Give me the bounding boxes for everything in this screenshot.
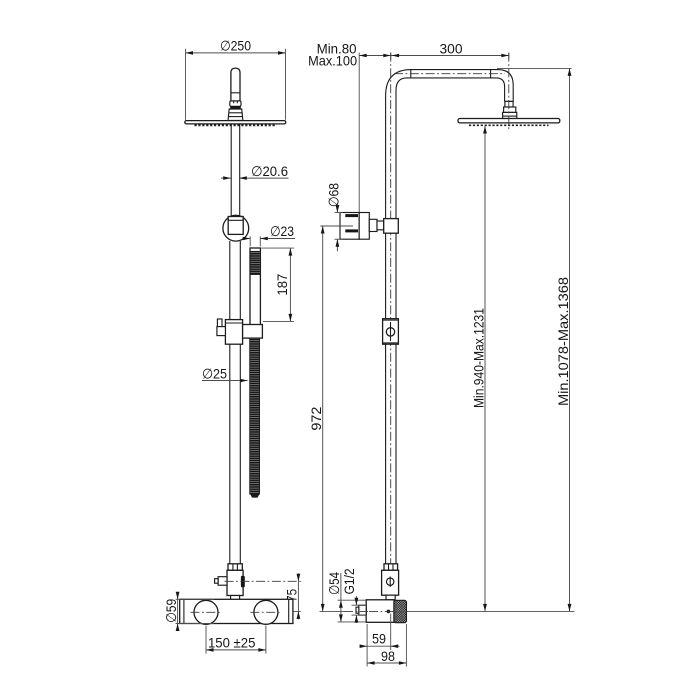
svg-text:Max.100: Max.100 xyxy=(308,54,357,69)
svg-text:∅25: ∅25 xyxy=(202,366,227,381)
svg-text:G1/2: G1/2 xyxy=(342,568,357,594)
svg-text:∅250: ∅250 xyxy=(220,38,251,53)
svg-text:∅59: ∅59 xyxy=(164,599,179,623)
svg-text:972: 972 xyxy=(309,407,324,431)
svg-text:∅54: ∅54 xyxy=(327,572,342,595)
svg-text:98: 98 xyxy=(381,649,395,664)
svg-text:∅68: ∅68 xyxy=(327,183,342,207)
svg-text:59: 59 xyxy=(372,632,386,647)
svg-text:187: 187 xyxy=(275,274,290,296)
svg-text:∅20.6: ∅20.6 xyxy=(251,164,288,179)
svg-text:150 ±25: 150 ±25 xyxy=(208,636,256,651)
svg-text:Min.1078-Max.1368: Min.1078-Max.1368 xyxy=(556,277,571,406)
svg-text:Min.940-Max.1231: Min.940-Max.1231 xyxy=(471,308,486,408)
svg-text:∅23: ∅23 xyxy=(270,224,294,239)
svg-text:300: 300 xyxy=(440,41,463,56)
